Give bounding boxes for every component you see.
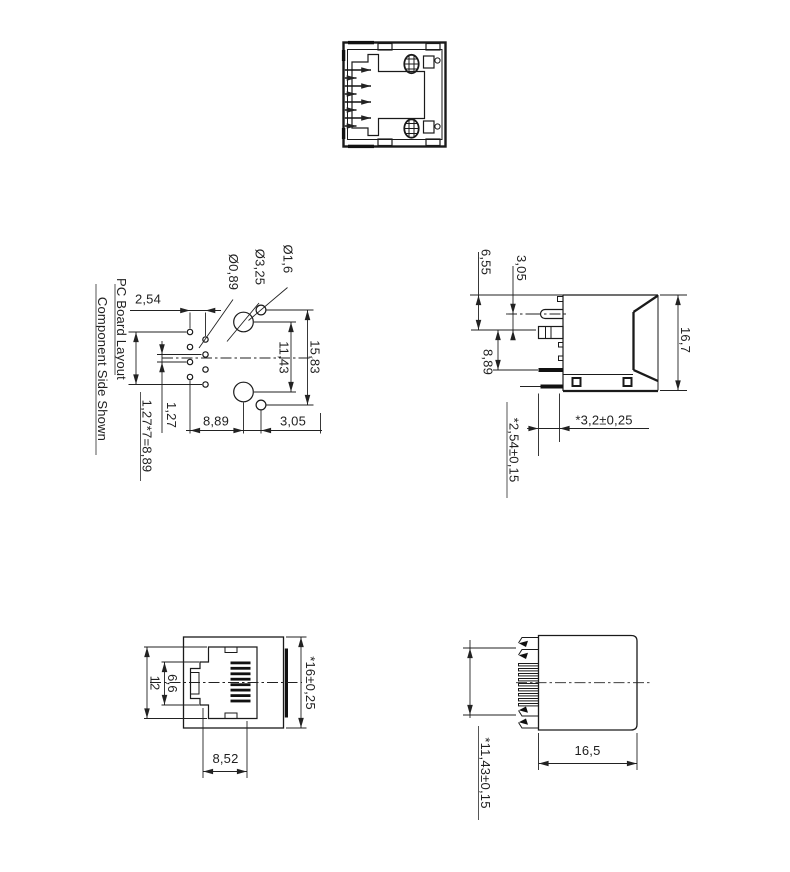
dim-top-to-latch: 6,55 bbox=[479, 249, 494, 275]
dim-height: 16,7 bbox=[678, 327, 693, 353]
key-slot bbox=[225, 713, 237, 719]
dim-tab-length: *3,2±0,25 bbox=[575, 413, 632, 428]
boss-hole bbox=[234, 382, 254, 402]
dim-boss-span: 11,43 bbox=[277, 341, 292, 374]
drawing-sheet: PC Board Layout Component Side Shown Ø0,… bbox=[0, 0, 790, 872]
front-view: 12 6,6 8,52 *16±0,25 bbox=[144, 637, 318, 778]
pcb-edge bbox=[285, 649, 288, 718]
contact-comb bbox=[231, 662, 251, 703]
dim-opening-width: 8,52 bbox=[212, 751, 238, 766]
dim-hole-diameter: Ø0,89 bbox=[226, 254, 241, 290]
dim-pin-diameter: Ø1,6 bbox=[281, 245, 296, 274]
shield-edge-tab bbox=[348, 41, 374, 44]
solder-tab bbox=[539, 368, 564, 372]
dim-row-pitch: 1,27 bbox=[164, 402, 179, 428]
dim-opening-height: 12 bbox=[148, 676, 163, 691]
corner-post bbox=[424, 56, 435, 68]
dim-latch-width: 6,6 bbox=[165, 674, 180, 693]
shield-edge-tab bbox=[342, 50, 345, 61]
dim-outer-span: 15,83 bbox=[308, 340, 323, 374]
top-view bbox=[342, 41, 446, 148]
chamfer-edge bbox=[634, 296, 659, 313]
technical-drawing: PC Board Layout Component Side Shown Ø0,… bbox=[0, 0, 790, 872]
corner-pin bbox=[435, 124, 440, 129]
shield-tab bbox=[558, 297, 564, 302]
corner-post bbox=[424, 121, 435, 133]
dim-block-to-tab: 8,89 bbox=[481, 349, 496, 375]
pcb-layout-view: PC Board Layout Component Side Shown Ø0,… bbox=[95, 245, 323, 481]
board-peg bbox=[624, 378, 632, 386]
face-rib bbox=[559, 356, 564, 361]
dim-column-pitch: 2,54 bbox=[135, 292, 161, 307]
solder-tab bbox=[541, 385, 564, 389]
dim-body-height: *16±0,25 bbox=[303, 656, 318, 710]
latch-slot bbox=[191, 673, 200, 695]
shield-edge-tab bbox=[348, 145, 374, 148]
shield-outline bbox=[344, 43, 446, 147]
dim-boss-offset: 8,89 bbox=[203, 414, 229, 429]
pcb-layout-subtitle: Component Side Shown bbox=[95, 297, 110, 441]
corner-pin bbox=[435, 58, 440, 63]
contact-pins bbox=[345, 70, 371, 126]
face-rib bbox=[559, 343, 564, 348]
board-peg bbox=[573, 378, 581, 386]
post-hole bbox=[256, 400, 266, 410]
dim-contact-span: *11,43±0,15 bbox=[478, 737, 493, 808]
key-slot bbox=[225, 647, 237, 653]
mounting-boss bbox=[404, 55, 418, 73]
rear-view: 16,5 *11,43±0,15 bbox=[463, 636, 651, 821]
dim-pin-offset: 3,05 bbox=[280, 414, 306, 429]
pcb-layout-title: PC Board Layout bbox=[114, 278, 129, 380]
dim-boss-diameter: Ø3,25 bbox=[253, 249, 268, 285]
shield-edge-tab bbox=[342, 128, 345, 139]
mounting-boss bbox=[404, 119, 418, 137]
dim-tab-stagger: *2,54±0,15 bbox=[507, 418, 522, 483]
leader-line bbox=[249, 288, 288, 321]
side-view: 6,55 3,05 8,89 16,7 *2,54±0,15 *3,2±0,25 bbox=[470, 249, 693, 498]
dim-body-depth: 16,5 bbox=[574, 743, 600, 758]
dim-row-total: 1,27*7=8,89 bbox=[140, 400, 155, 473]
housing-outline bbox=[348, 50, 443, 140]
dim-latch-to-block: 3,05 bbox=[514, 255, 529, 281]
